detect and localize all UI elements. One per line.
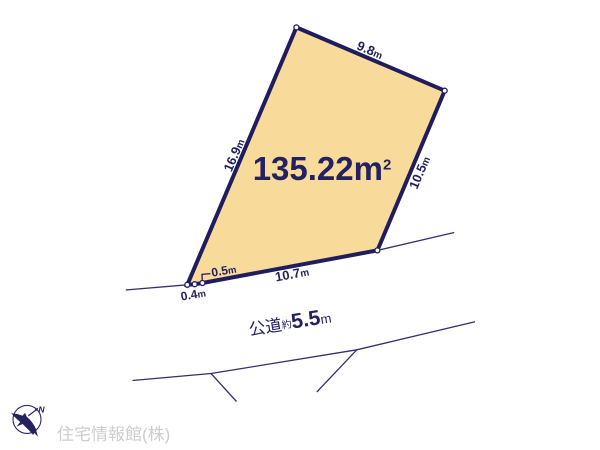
svg-text:m: m: [319, 310, 332, 327]
svg-text:N: N: [38, 404, 45, 414]
svg-text:(: (: [142, 425, 148, 444]
svg-text:5.5: 5.5: [290, 306, 323, 333]
svg-text:135.22m2: 135.22m2: [253, 150, 392, 187]
svg-text:0.4m: 0.4m: [180, 285, 207, 303]
svg-text:): ): [165, 425, 171, 444]
